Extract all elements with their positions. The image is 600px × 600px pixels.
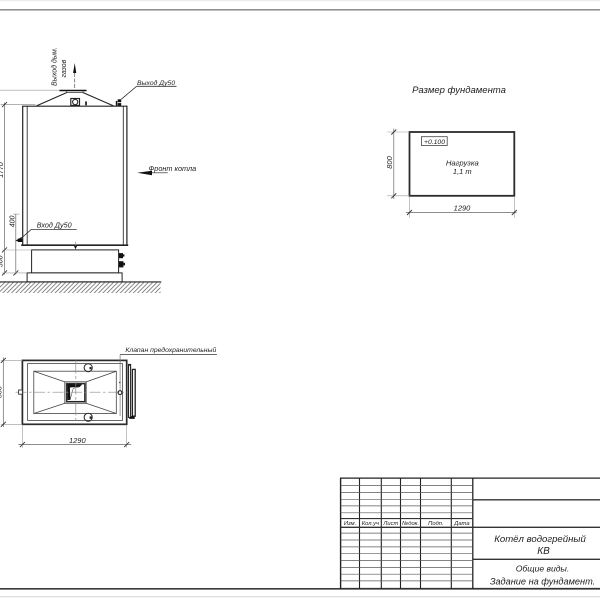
svg-text:КВ: КВ <box>537 546 550 557</box>
svg-text:1290: 1290 <box>454 203 472 212</box>
svg-text:300: 300 <box>0 255 5 267</box>
svg-text:Изм.: Изм. <box>344 521 356 527</box>
svg-text:1290: 1290 <box>69 436 87 445</box>
svg-text:Дата: Дата <box>453 521 470 527</box>
svg-text:Общие виды.: Общие виды. <box>516 563 570 573</box>
svg-text:Лист: Лист <box>382 521 398 527</box>
svg-text:Выход Ду50: Выход Ду50 <box>137 79 175 87</box>
svg-text:+0.100: +0.100 <box>424 139 445 146</box>
svg-text:газов: газов <box>61 59 68 77</box>
svg-text:800: 800 <box>385 155 394 168</box>
svg-text:Клапан предохранительный: Клапан предохранительный <box>125 346 216 354</box>
svg-text:Вход Ду50: Вход Ду50 <box>37 220 72 229</box>
svg-text:1,1 т: 1,1 т <box>453 167 472 176</box>
svg-text:Фронт котла: Фронт котла <box>149 164 197 173</box>
svg-text:400: 400 <box>9 215 16 227</box>
svg-text:№док.: №док. <box>402 521 419 527</box>
svg-text:1770: 1770 <box>0 162 5 178</box>
svg-text:Подп.: Подп. <box>428 521 443 527</box>
svg-text:800: 800 <box>0 386 3 398</box>
svg-text:Котёл водогрейный: Котёл водогрейный <box>494 534 586 545</box>
svg-text:Кол.уч: Кол.уч <box>362 521 379 527</box>
svg-text:Размер фундамента: Размер фундамента <box>412 85 506 96</box>
svg-text:Выход дым.: Выход дым. <box>50 47 58 86</box>
svg-text:Задание на фундамент.: Задание на фундамент. <box>490 576 595 586</box>
